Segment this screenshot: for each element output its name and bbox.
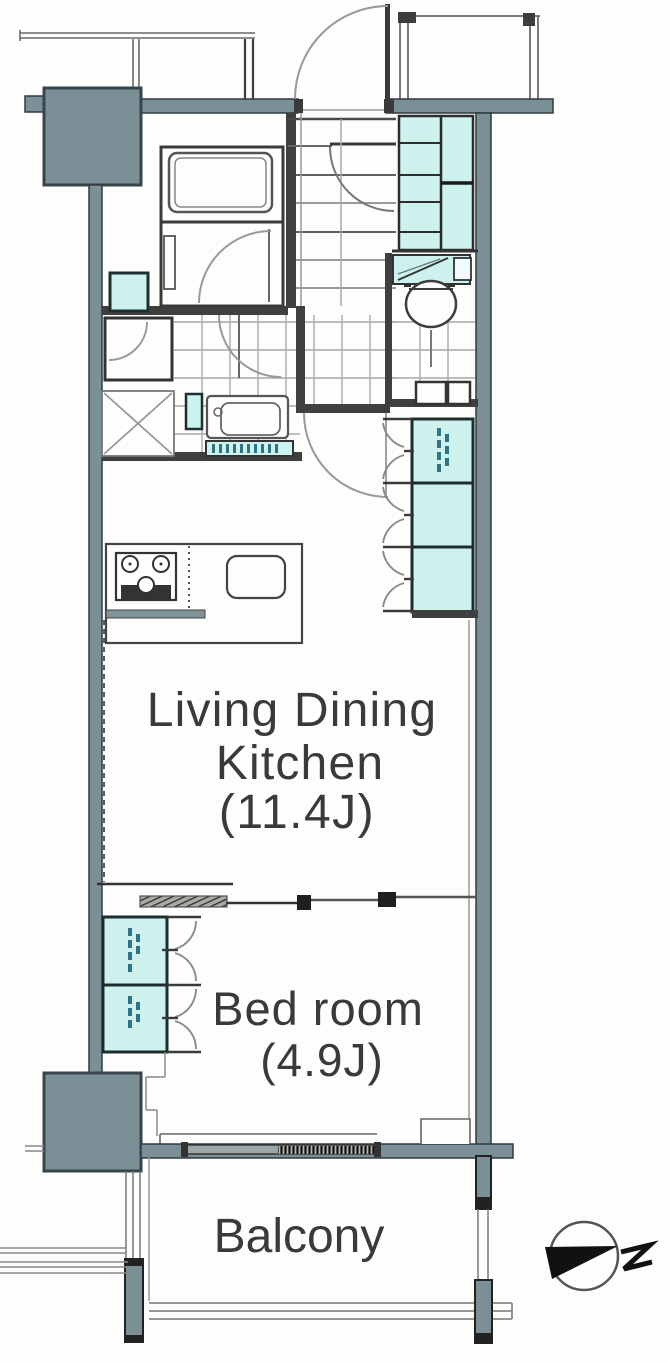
svg-text:(4.9J): (4.9J)	[260, 1034, 384, 1086]
svg-text:Living Dining: Living Dining	[147, 684, 437, 737]
svg-text:Balcony: Balcony	[214, 1210, 385, 1263]
svg-text:Kitchen: Kitchen	[216, 737, 385, 790]
svg-text:(11.4J): (11.4J)	[219, 786, 375, 839]
svg-text:Bed room: Bed room	[212, 982, 424, 1035]
